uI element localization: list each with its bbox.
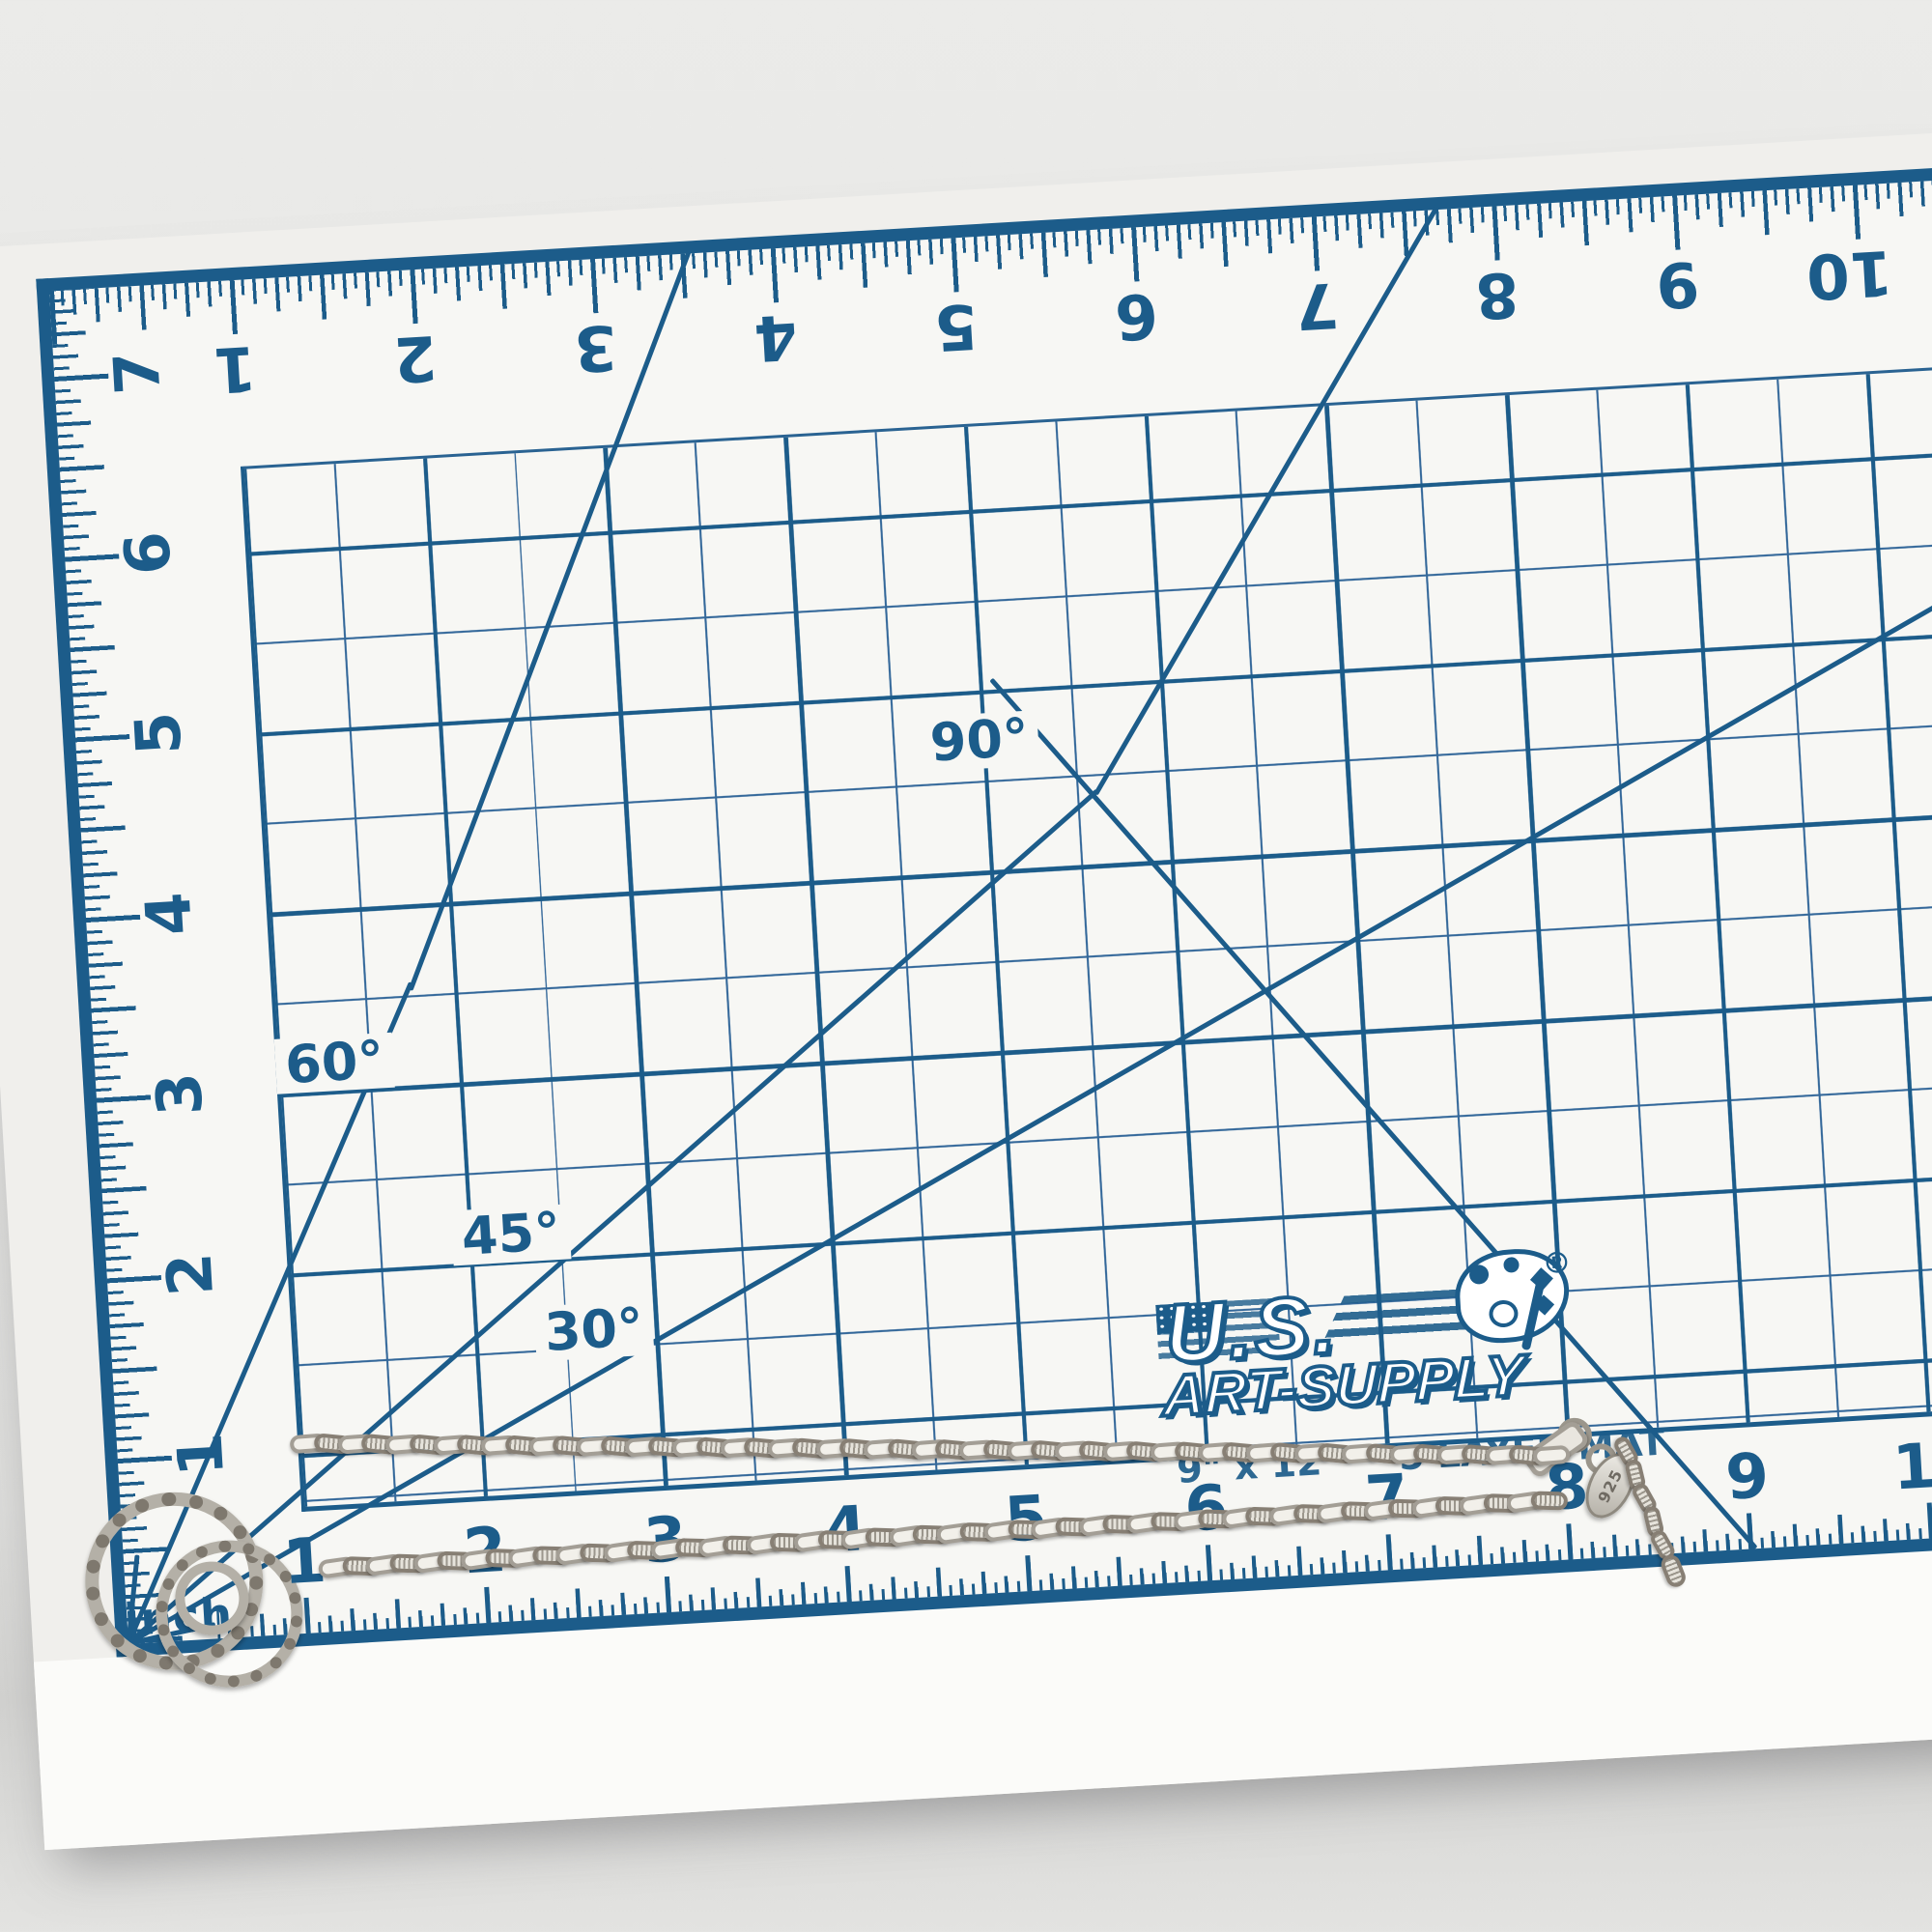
left-ruler-number: 4 [137, 877, 203, 951]
chain-link [1531, 1491, 1569, 1510]
angle-label-45: 45° [450, 1204, 571, 1265]
angle-label-60: 60° [274, 1033, 395, 1094]
top-ruler-number: 10 [1821, 241, 1894, 306]
left-ruler-number: 7 [105, 336, 171, 410]
top-ruler-number: 2 [379, 325, 452, 390]
angle-label-90: 90° [919, 710, 1039, 772]
top-ruler-number: 1 [198, 335, 271, 401]
bottom-ruler-number: 9 [1711, 1444, 1784, 1510]
cutting-mat: 30° 45° 60° 90° inch U.S. ® ART-SUPPLY 9… [0, 122, 1932, 1850]
top-ruler-number: 9 [1641, 251, 1715, 317]
top-ruler-number: 6 [1100, 282, 1174, 348]
top-ruler-number: 4 [739, 303, 812, 369]
left-ruler-number: 5 [127, 696, 192, 770]
grid [241, 360, 1932, 1512]
chain-link [1532, 1445, 1570, 1466]
top-ruler-number: 7 [1280, 271, 1353, 337]
left-ruler-number: 3 [148, 1058, 213, 1131]
top-ruler-number: 5 [920, 293, 993, 358]
angle-label-30: 30° [533, 1300, 654, 1362]
registered-mark: ® [1542, 1246, 1573, 1282]
bottom-ruler-number: 10 [1891, 1435, 1932, 1500]
left-ruler-number: 2 [158, 1238, 224, 1312]
left-ruler-number: 1 [169, 1418, 235, 1492]
left-ruler-number: 6 [116, 517, 182, 590]
top-ruler-number: 3 [559, 314, 633, 380]
top-ruler-number: 8 [1461, 262, 1534, 327]
